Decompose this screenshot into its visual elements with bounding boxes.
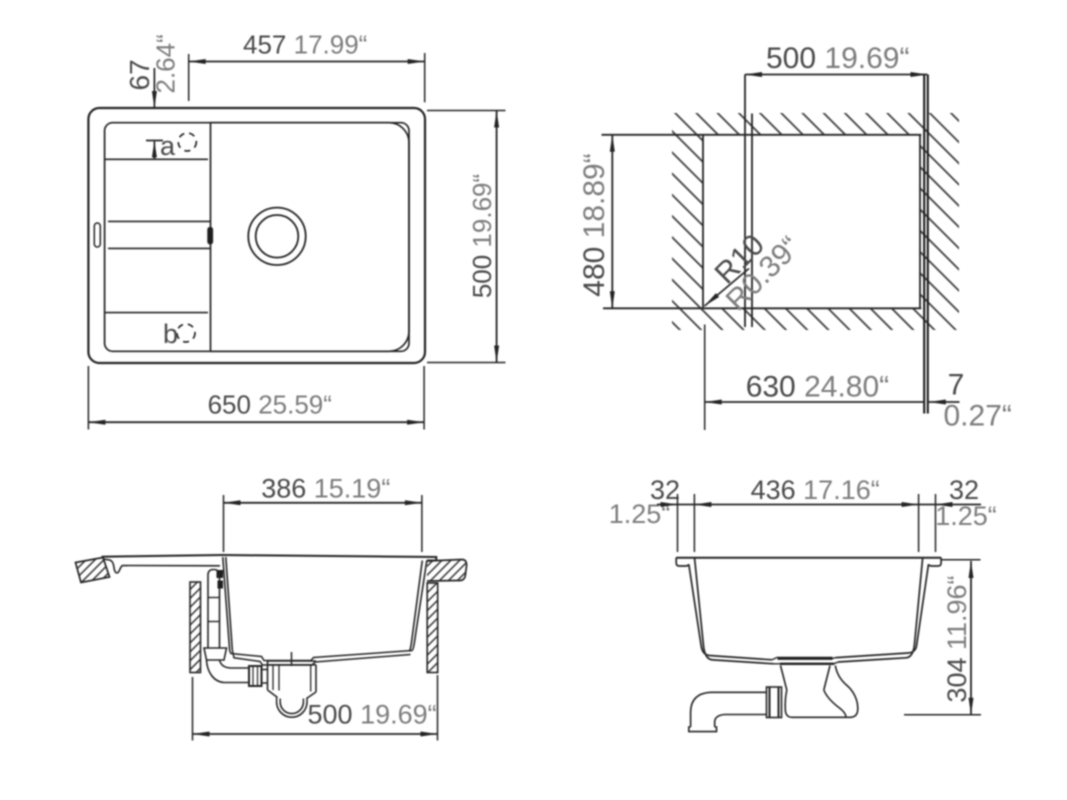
svg-text:630 24.80“: 630 24.80“ — [746, 370, 889, 403]
svg-text:500 19.69“: 500 19.69“ — [766, 42, 909, 75]
svg-text:500 19.69“: 500 19.69“ — [308, 700, 437, 730]
svg-text:480 18.89“: 480 18.89“ — [578, 153, 611, 296]
svg-text:0.27“: 0.27“ — [944, 400, 1012, 433]
svg-text:7: 7 — [948, 369, 965, 402]
svg-text:436 17.16“: 436 17.16“ — [751, 475, 880, 505]
svg-text:500 19.69“: 500 19.69“ — [467, 174, 497, 298]
svg-text:650 25.59“: 650 25.59“ — [208, 390, 332, 420]
svg-text:a: a — [160, 131, 176, 161]
svg-text:457 17.99“: 457 17.99“ — [243, 30, 367, 60]
svg-text:386 15.19“: 386 15.19“ — [261, 474, 390, 504]
svg-text:b: b — [163, 319, 178, 349]
svg-text:304 11.96“: 304 11.96“ — [942, 575, 972, 702]
